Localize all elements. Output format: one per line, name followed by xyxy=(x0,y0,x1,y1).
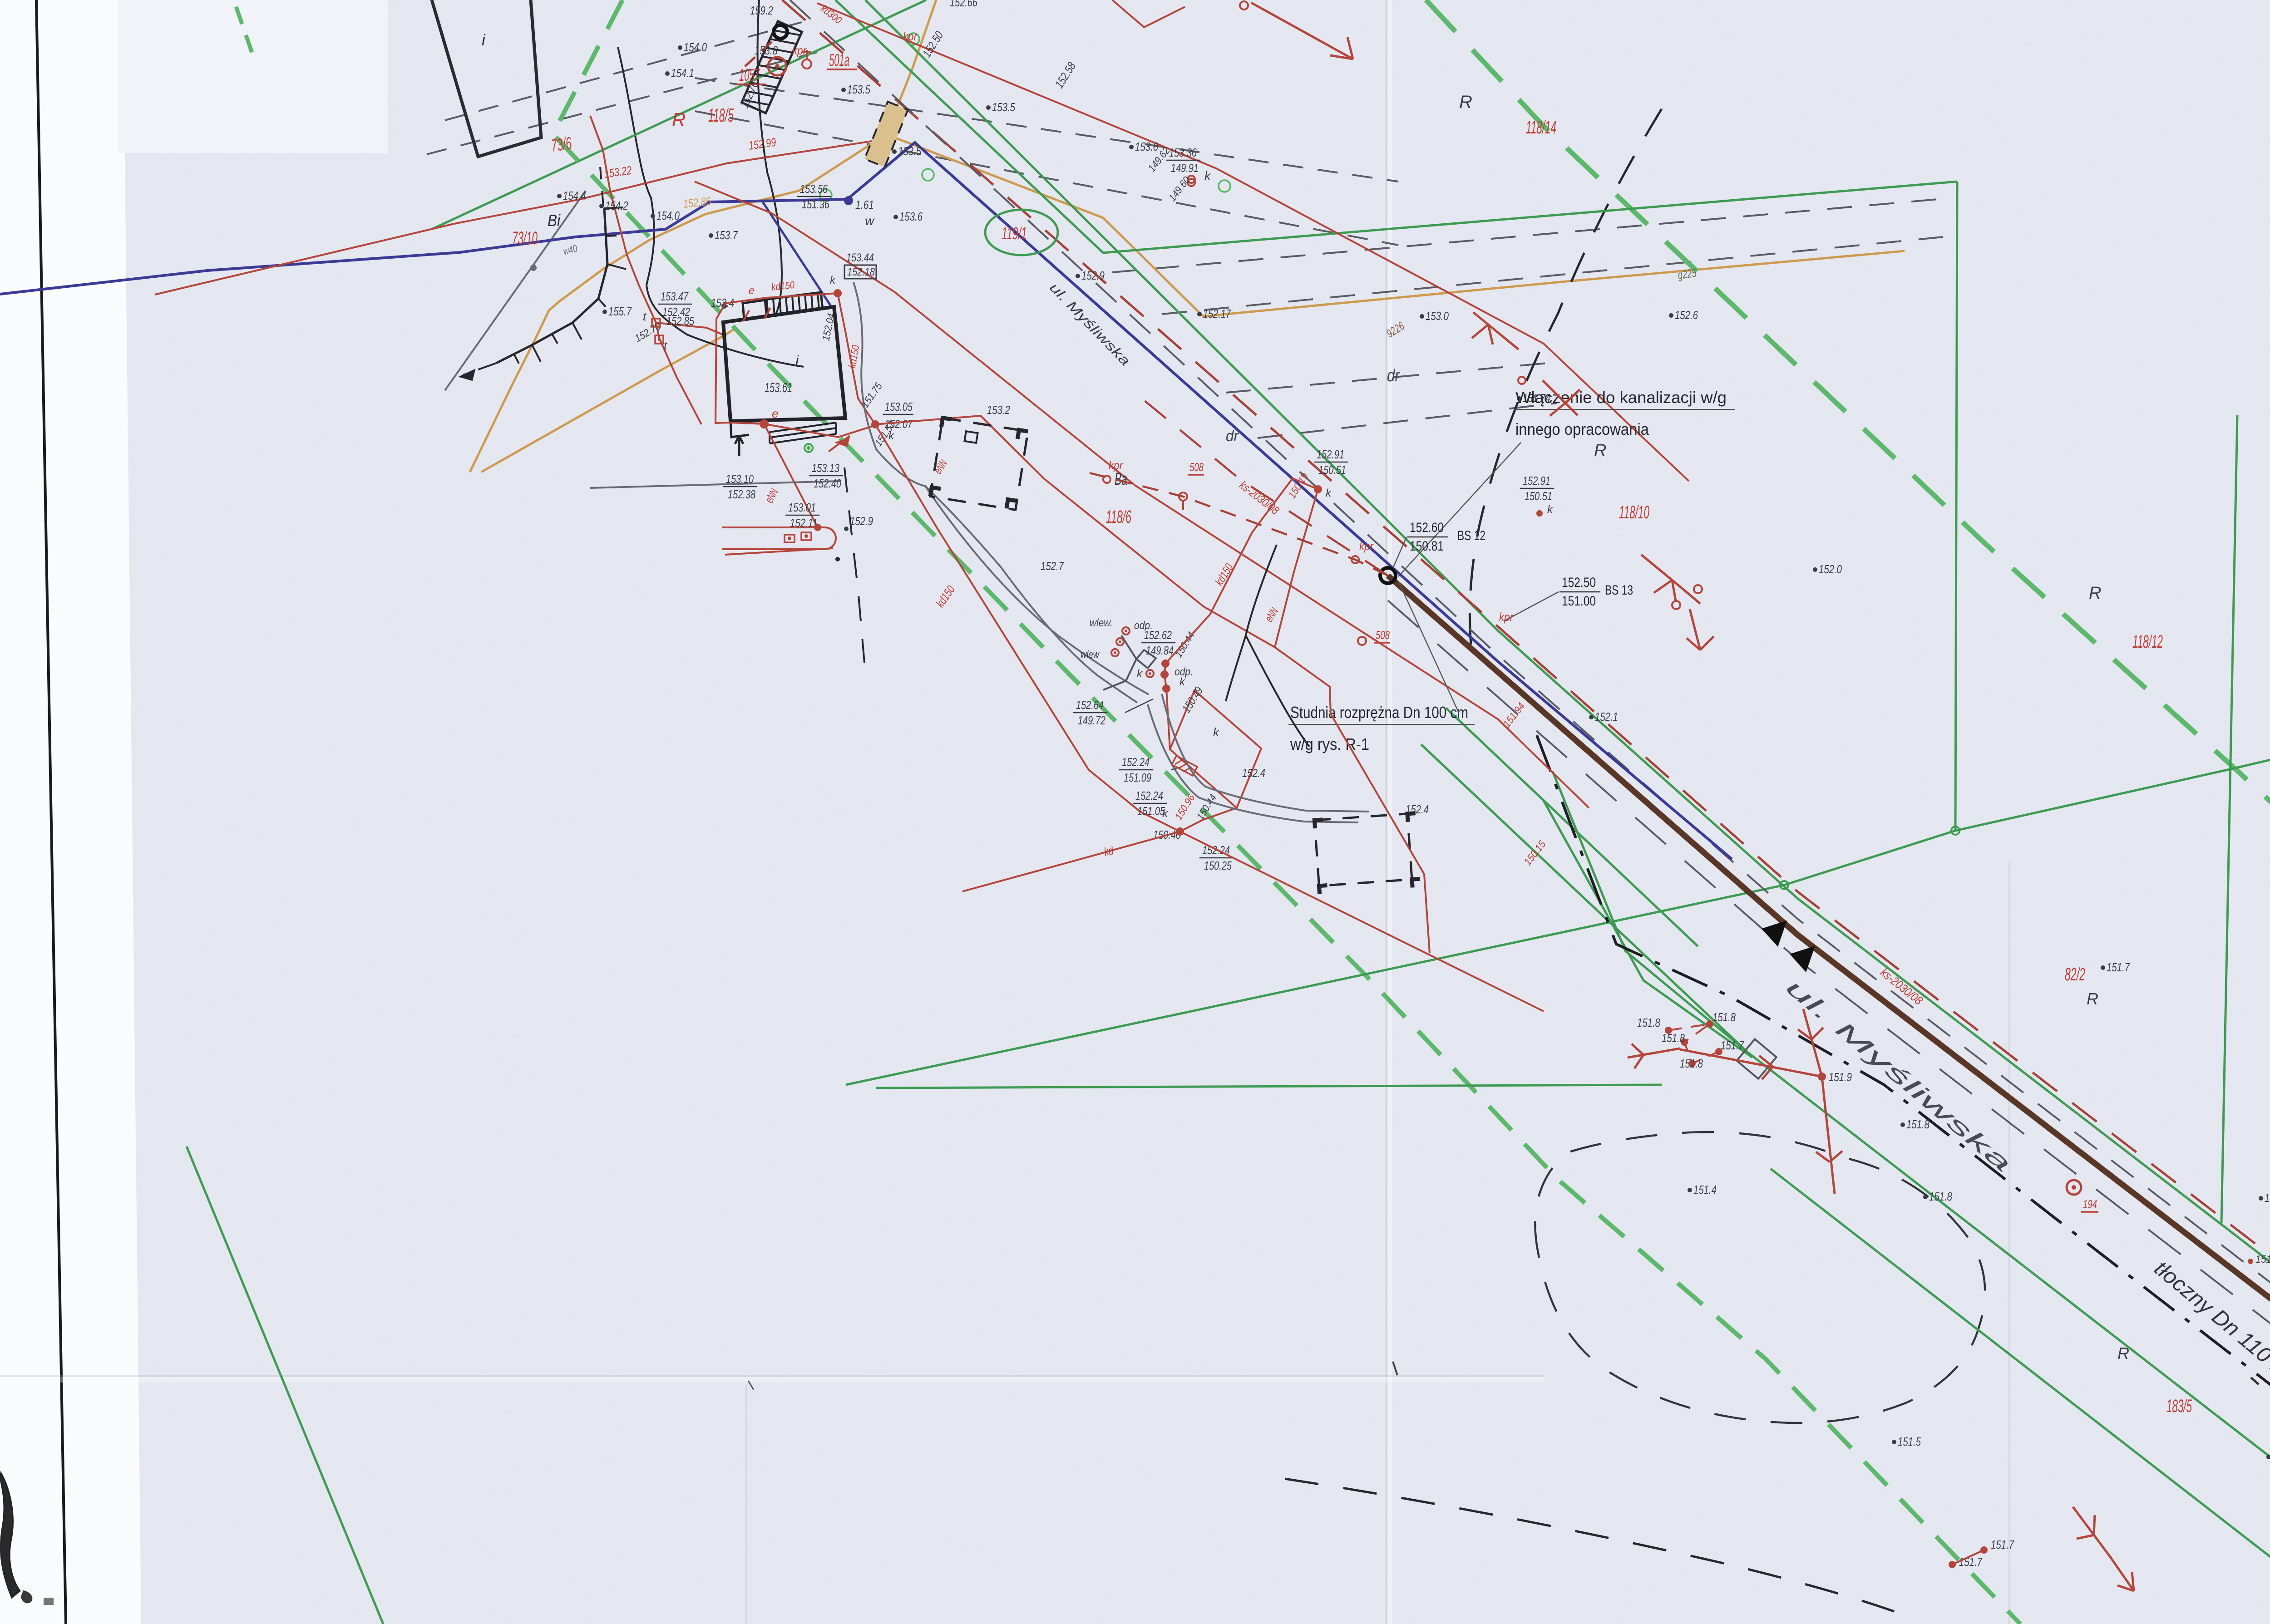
svg-text:k: k xyxy=(830,274,836,286)
svg-text:152.24: 152.24 xyxy=(1135,789,1163,802)
svg-text:151.05: 151.05 xyxy=(1137,804,1165,818)
svg-text:152.40: 152.40 xyxy=(814,477,841,490)
svg-text:118/5: 118/5 xyxy=(708,104,734,126)
svg-text:152.1: 152.1 xyxy=(1595,710,1618,723)
svg-text:152.50: 152.50 xyxy=(1562,575,1596,590)
svg-text:153.10: 153.10 xyxy=(726,472,754,486)
svg-text:119/1: 119/1 xyxy=(1002,224,1027,243)
svg-text:152.24: 152.24 xyxy=(1122,755,1150,769)
svg-text:152.62: 152.62 xyxy=(1144,628,1172,642)
svg-text:153.0: 153.0 xyxy=(1426,309,1449,323)
svg-text:152.91: 152.91 xyxy=(1523,474,1550,487)
svg-text:k: k xyxy=(1137,668,1143,680)
svg-text:501a: 501a xyxy=(829,51,849,70)
svg-text:153.6: 153.6 xyxy=(899,210,923,223)
svg-text:118/10: 118/10 xyxy=(1619,502,1649,522)
svg-text:149.91: 149.91 xyxy=(1171,161,1199,175)
svg-text:153.2: 153.2 xyxy=(987,403,1010,417)
svg-text:152.85: 152.85 xyxy=(666,314,694,328)
svg-text:wlew.: wlew. xyxy=(1090,617,1113,629)
svg-text:151.8: 151.8 xyxy=(1929,1190,1952,1203)
svg-text:150.51: 150.51 xyxy=(1525,489,1552,503)
svg-text:154.0: 154.0 xyxy=(656,209,680,222)
svg-text:118/12: 118/12 xyxy=(2132,632,2163,652)
svg-text:Włączenie do kanalizacji w/g: Włączenie do kanalizacji w/g xyxy=(1515,388,1727,407)
svg-text:153.13: 153.13 xyxy=(812,461,839,475)
svg-text:dr: dr xyxy=(1226,428,1239,445)
svg-text:154.4: 154.4 xyxy=(563,189,586,202)
svg-text:153.5: 153.5 xyxy=(847,83,870,96)
svg-text:153.36: 153.36 xyxy=(1169,146,1197,159)
svg-text:151.09: 151.09 xyxy=(1124,771,1151,784)
svg-text:151.7: 151.7 xyxy=(1721,1038,1744,1052)
svg-text:innego opracowania: innego opracowania xyxy=(1515,420,1649,438)
svg-text:153.6: 153.6 xyxy=(1135,140,1158,153)
svg-text:152.38: 152.38 xyxy=(728,487,755,501)
svg-text:k: k xyxy=(1213,725,1220,739)
svg-text:150.51: 150.51 xyxy=(1318,463,1346,477)
svg-text:g225: g225 xyxy=(1677,266,1698,281)
svg-text:R: R xyxy=(2117,1344,2129,1363)
svg-text:159.2: 159.2 xyxy=(750,4,773,17)
svg-text:152.17: 152.17 xyxy=(1203,307,1231,320)
svg-text:wlew: wlew xyxy=(1081,649,1100,661)
svg-text:w/g rys. R-1: w/g rys. R-1 xyxy=(1290,735,1369,753)
svg-text:153.8: 153.8 xyxy=(755,44,778,57)
svg-text:118/14: 118/14 xyxy=(1526,118,1556,138)
svg-text:155.7: 155.7 xyxy=(608,305,632,318)
svg-text:151.: 151. xyxy=(2255,1253,2270,1265)
svg-text:152.7: 152.7 xyxy=(1041,559,1064,573)
svg-text:118/6: 118/6 xyxy=(1106,507,1131,527)
svg-text:149.72: 149.72 xyxy=(1078,714,1105,727)
svg-text:151.4: 151.4 xyxy=(1693,1183,1717,1196)
svg-text:151.8: 151.8 xyxy=(1906,1117,1929,1131)
svg-text:152.66: 152.66 xyxy=(950,0,977,9)
svg-text:151.5: 151.5 xyxy=(1898,1435,1921,1448)
svg-text:BS 13: BS 13 xyxy=(1605,583,1633,598)
svg-text:e: e xyxy=(749,285,755,297)
svg-text:kpr: kpr xyxy=(792,44,807,57)
svg-text:150.25: 150.25 xyxy=(1204,859,1232,872)
svg-text:i: i xyxy=(795,353,799,369)
svg-text:151.8: 151.8 xyxy=(1637,1016,1660,1029)
svg-text:k: k xyxy=(1204,169,1211,182)
svg-text:153.7: 153.7 xyxy=(715,228,738,242)
svg-text:82/2: 82/2 xyxy=(2065,965,2085,984)
svg-text:154.0: 154.0 xyxy=(684,40,707,54)
svg-text:152.9: 152.9 xyxy=(850,514,873,528)
svg-text:153.05: 153.05 xyxy=(885,400,913,413)
svg-text:w: w xyxy=(865,214,875,228)
svg-text:152.60: 152.60 xyxy=(1410,520,1444,535)
svg-text:dr: dr xyxy=(1387,366,1400,385)
svg-text:73/10: 73/10 xyxy=(512,228,538,248)
svg-text:154.1: 154.1 xyxy=(671,66,694,80)
svg-text:153.01: 153.01 xyxy=(788,501,816,514)
svg-text:k: k xyxy=(1326,487,1332,499)
svg-text:1.61: 1.61 xyxy=(855,198,874,212)
svg-text:R: R xyxy=(672,109,686,130)
svg-text:152.0: 152.0 xyxy=(1819,562,1842,576)
svg-text:kpr: kpr xyxy=(1109,458,1123,472)
svg-text:151.9: 151.9 xyxy=(1829,1070,1852,1084)
svg-text:151.7: 151.7 xyxy=(2107,960,2130,974)
svg-text:Bi: Bi xyxy=(548,211,561,230)
svg-text:153.44: 153.44 xyxy=(846,251,874,264)
svg-text:153.61: 153.61 xyxy=(765,380,792,395)
svg-text:183/5: 183/5 xyxy=(2166,1396,2192,1416)
svg-text:151.36: 151.36 xyxy=(802,197,829,211)
svg-text:152.91: 152.91 xyxy=(1317,448,1344,461)
svg-text:153.5: 153.5 xyxy=(898,144,921,158)
svg-text:508: 508 xyxy=(1376,628,1390,642)
svg-text:73/6: 73/6 xyxy=(550,134,573,156)
svg-text:154.2: 154.2 xyxy=(605,199,628,212)
svg-text:152.18: 152.18 xyxy=(847,266,875,278)
svg-text:152.4: 152.4 xyxy=(1242,766,1265,780)
svg-text:e: e xyxy=(772,407,778,420)
svg-text:kpr: kpr xyxy=(903,30,918,43)
svg-text:152.64: 152.64 xyxy=(1076,698,1104,712)
svg-text:kpr: kpr xyxy=(1499,610,1514,624)
svg-text:149.84: 149.84 xyxy=(1146,644,1174,657)
svg-text:k: k xyxy=(1162,807,1169,820)
svg-text:151.00: 151.00 xyxy=(1562,594,1596,609)
svg-text:152.9: 152.9 xyxy=(1081,269,1105,282)
svg-text:BS 12: BS 12 xyxy=(1457,528,1485,543)
svg-text:R: R xyxy=(1594,441,1606,460)
svg-text:153.47: 153.47 xyxy=(661,290,689,303)
svg-text:153.5: 153.5 xyxy=(992,100,1015,114)
svg-text:194: 194 xyxy=(2083,1197,2097,1211)
svg-text:151.8: 151.8 xyxy=(2265,1191,2270,1205)
svg-text:k: k xyxy=(1179,676,1186,688)
svg-text:151.7: 151.7 xyxy=(1959,1555,1983,1569)
svg-text:151.7: 151.7 xyxy=(1991,1538,2014,1551)
svg-text:Studnia rozprężna Dn 100 cm: Studnia rozprężna Dn 100 cm xyxy=(1290,703,1468,722)
svg-text:R: R xyxy=(2087,989,2098,1008)
svg-text:151.8: 151.8 xyxy=(1662,1031,1685,1045)
svg-text:508: 508 xyxy=(1189,460,1204,474)
svg-text:k: k xyxy=(1547,503,1554,516)
svg-text:R: R xyxy=(2089,584,2101,603)
svg-text:152.6: 152.6 xyxy=(1675,308,1698,322)
svg-text:kpr: kpr xyxy=(1359,539,1374,553)
svg-text:150.81: 150.81 xyxy=(1410,539,1444,554)
svg-text:R: R xyxy=(1459,92,1472,112)
svg-text:153.56: 153.56 xyxy=(800,182,828,196)
svg-text:152.86: 152.86 xyxy=(682,194,711,211)
svg-text:151.8: 151.8 xyxy=(1712,1010,1736,1024)
svg-text:151.8: 151.8 xyxy=(1680,1057,1703,1070)
